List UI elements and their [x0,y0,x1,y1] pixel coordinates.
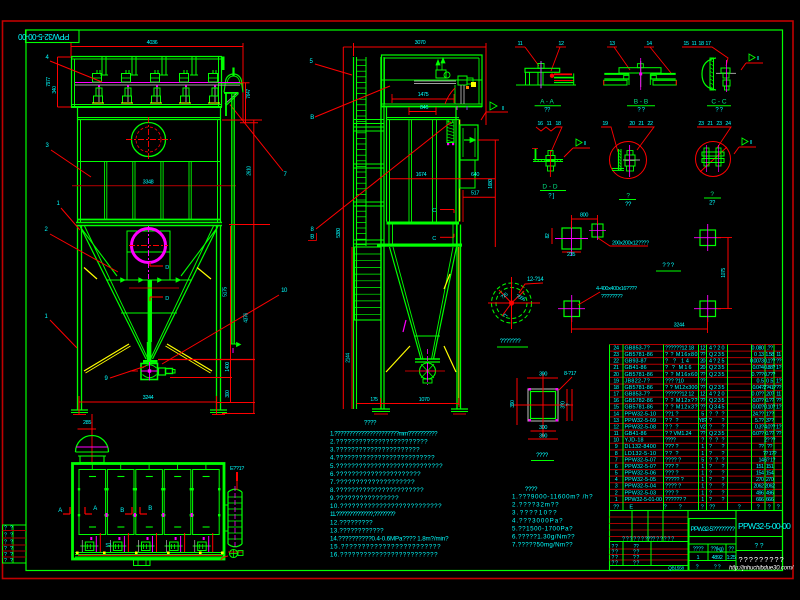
svg-text:21: 21 [638,121,644,127]
svg-text:GB5781-86: GB5781-86 [625,405,653,411]
svg-text:2062: 2062 [765,484,775,490]
svg-text:??? ?10: ??? ?10 [665,378,684,384]
svg-text:3??: 3?? [766,418,774,424]
svg-text:666: 666 [756,497,764,503]
svg-text:?: ? [701,505,704,511]
svg-text:? ? M16x80: ? ? M16x80 [665,352,698,358]
svg-text:16: 16 [613,398,619,404]
svg-text:0.0?4: 0.0?4 [753,365,764,371]
svg-text:17: 17 [705,41,711,47]
svg-text:7.?????50mg/Nm??: 7.?????50mg/Nm?? [512,542,573,549]
svg-text:1:25: 1:25 [727,555,736,561]
svg-text:2?41?: 2?41? [763,385,776,391]
svg-text:2: 2 [615,490,618,496]
svg-text:GB5782-86: GB5782-86 [625,398,653,404]
svg-text:18: 18 [555,121,561,127]
svg-text:E??1?: E??1? [230,466,244,472]
svg-text:? ?: ? ? [637,108,645,114]
svg-text:??(kg): ??(kg) [711,547,724,553]
svg-text:GB93-87: GB93-87 [625,359,647,365]
svg-text:235: 235 [567,252,575,258]
svg-text:2.????32m??: 2.????32m?? [512,502,559,509]
svg-text:????: ???? [364,420,377,427]
svg-text:1??: 1?? [766,411,774,417]
svg-text:640: 640 [471,172,479,178]
svg-text:1400: 1400 [225,362,231,372]
svg-text:A - A: A - A [540,99,554,106]
svg-text:15: 15 [683,41,689,47]
svg-text:.??: .?? [767,345,773,351]
svg-text:1475: 1475 [418,92,429,98]
svg-text:? ?: ? ? [612,561,619,567]
svg-text:1.??????????????????????mm????: 1.??????????????????????mm?????????? [330,431,438,438]
svg-text:??: ?? [709,505,715,511]
svg-text:175: 175 [370,397,378,403]
svg-text:15: 15 [613,405,619,411]
svg-text:3: 3 [615,484,618,490]
svg-text:C: C [432,236,436,242]
svg-text:9: 9 [615,444,618,450]
svg-text:DL132-8400: DL132-8400 [625,444,656,450]
svg-text:300: 300 [225,390,231,398]
svg-text:D - D: D - D [542,184,557,191]
svg-text:? ? M12x3?: ? ? M12x3? [665,405,698,411]
svg-text:? ? M12x300: ? ? M12x300 [665,385,698,391]
svg-text:0.??: 0.?? [765,398,774,404]
svg-text:?: ? [664,505,667,511]
svg-text:12-?14: 12-?14 [527,277,544,283]
svg-text:PPW32-5-10: PPW32-5-10 [625,411,656,417]
svg-text:270: 270 [766,477,774,483]
svg-text:GB853-7?: GB853-7? [625,392,650,398]
svg-text:0.0??: 0.0?? [753,431,764,437]
svg-text:13: 13 [613,418,619,424]
svg-text:V2: V2 [700,424,706,430]
svg-text:PPW32-5-08: PPW32-5-08 [625,424,656,430]
svg-text:Q235: Q235 [709,385,725,391]
svg-text:PPW32-5-00-00: PPW32-5-00-00 [18,32,70,41]
svg-text:1: 1 [615,497,618,503]
svg-text:??: ?? [776,431,781,437]
svg-text:9.????????????????: 9.???????????????? [330,495,399,502]
svg-text:II: II [584,141,586,147]
svg-text:1070: 1070 [419,397,430,403]
svg-text:2062: 2062 [754,484,764,490]
svg-text:PPW32-5-03: PPW32-5-03 [625,490,656,496]
svg-text:? ?: ? ? [714,565,721,571]
svg-text:390: 390 [539,372,547,378]
svg-text:12: 12 [558,41,564,47]
svg-text:PPW32-5-06: PPW32-5-06 [625,471,656,477]
svg-text:1?: 1? [776,365,781,371]
svg-text:11: 11 [776,392,781,398]
svg-text:0.04?: 0.04? [753,385,764,391]
svg-text:517: 517 [471,191,479,197]
svg-text:11: 11 [614,431,619,437]
svg-text:4892: 4892 [712,555,723,561]
svg-text:???? ?: ???? ? [665,484,681,490]
svg-text:GB5781-86: GB5781-86 [625,372,653,378]
svg-text:GB5781-86: GB5781-86 [625,352,653,358]
svg-text:11: 11 [692,41,697,47]
svg-text:????????: ???????? [601,294,623,300]
svg-text:??1 ?: ??1 ? [665,411,679,417]
svg-text:0 .???: 0 .??? [752,372,764,378]
svg-text:? ?: ? ? [754,543,763,550]
svg-text:D: D [165,296,169,302]
svg-text:0 .0??: 0 .0?? [752,392,764,398]
svg-text:???????: ??????? [500,339,522,345]
svg-text:24: 24 [613,345,619,351]
svg-text:10: 10 [613,438,619,444]
svg-text:13.????????????: 13.???????????? [330,527,384,534]
svg-text:II: II [750,140,752,146]
svg-text:22: 22 [613,359,619,365]
svg-text:??: ?? [613,505,619,511]
svg-text:????: ???? [693,547,704,553]
svg-text:4?25: 4?25 [709,359,725,365]
svg-text:B: B [310,115,314,121]
svg-text:??? ?: ??? ? [665,444,679,450]
svg-text:S?: S? [105,543,111,549]
svg-text:154: 154 [766,471,774,477]
svg-text:496: 496 [756,490,764,496]
svg-text:200x200x12????: 200x200x12???? [612,241,649,247]
svg-text:1.58: 1.58 [765,352,774,358]
svg-text:??: ?? [700,385,705,391]
svg-text:16: 16 [537,121,543,127]
svg-text:2610: 2610 [247,166,253,176]
svg-text:B: B [120,508,124,514]
svg-text:23: 23 [698,121,704,127]
svg-text:4-400x400x16????: 4-400x400x16???? [596,286,637,292]
svg-text:5.????????????????????????????: 5.???????????????????????????? [330,463,443,470]
svg-text:C: C [432,208,436,214]
svg-text:??? ?: ??? ? [665,464,679,470]
svg-text:17: 17 [613,392,619,398]
svg-text:3070: 3070 [415,40,426,46]
svg-text:0.88?: 0.88? [764,365,775,371]
svg-text:II: II [502,106,504,112]
svg-text:???: ??? [709,411,725,417]
svg-text:II: II [757,56,759,62]
svg-text:Q235: Q235 [709,398,725,404]
svg-text:3.??????????????????????: 3.?????????????????????? [330,447,420,454]
svg-text:7977: 7977 [46,77,52,87]
svg-text:??: ?? [767,444,772,450]
svg-text:20: 20 [629,121,635,127]
svg-text:PPW32-5????????: PPW32-5???????? [691,526,736,533]
svg-text:5.??: 5.?? [755,418,764,424]
svg-text:8: 8 [615,451,618,457]
svg-text:PPW32-5-07: PPW32-5-07 [625,457,656,463]
svg-text:Q235: Q235 [709,365,725,371]
svg-text:Q235: Q235 [709,431,725,437]
svg-text:??: ?? [700,431,705,437]
svg-text:??????12 18: ??????12 18 [665,345,694,351]
svg-text:2144: 2144 [346,353,352,363]
svg-text:390: 390 [510,400,516,408]
svg-text:5175: 5175 [223,287,229,297]
svg-text:0.00?: 0.00? [753,405,764,411]
svg-text:270: 270 [756,477,764,483]
svg-text:A: A [58,508,62,514]
svg-text:4036: 4036 [147,40,158,46]
svg-text:13: 13 [609,41,615,47]
svg-text:6.??????????????????????: 6.?????????????????????? [330,471,421,478]
svg-text:7.????????????????????: 7.???????????????????? [330,479,415,486]
svg-text:??: ?? [759,444,764,450]
svg-text:19: 19 [613,378,619,384]
svg-text:18: 18 [698,41,704,47]
svg-text:846: 846 [420,105,428,111]
svg-text:????: ???? [536,453,549,459]
svg-text:? ?: ? ? [715,108,723,114]
svg-text:1?: 1? [776,378,781,384]
svg-text:11.??????????????,????????: 11.??????????????,???????? [330,511,396,518]
svg-text:?: ? [777,505,780,511]
svg-text:12: 12 [700,345,705,351]
svg-text:285: 285 [83,420,91,426]
svg-text:? ]: ? ] [548,194,554,200]
svg-text:?????? ?: ?????? ? [665,497,686,503]
svg-text:496: 496 [766,490,774,496]
svg-text:? ? M16x60: ? ? M16x60 [665,372,698,378]
svg-text:5: 5 [615,471,618,477]
svg-text:? ?: ? ? [4,558,14,564]
svg-text:B - B: B - B [634,99,648,106]
svg-text:??: ?? [700,372,705,378]
svg-text:QB1558: QB1558 [668,566,684,572]
svg-text:11: 11 [547,121,552,127]
svg-text:? ? ? ? ? ? ???? ? ? ? ? ?: ? ? ? ? ? ? ???? ? ? ? ? ? [622,537,674,543]
svg-text:GB5781-86: GB5781-86 [625,385,653,391]
svg-text:1075: 1075 [721,268,727,278]
svg-text:4.0??: 4.0?? [764,424,775,430]
svg-text:0 .080: 0 .080 [752,345,764,351]
svg-text:1674: 1674 [416,172,427,178]
svg-text:0 .5: 0 .5 [757,378,764,384]
svg-text:1?: 1? [776,424,781,430]
svg-text:11: 11 [776,352,781,358]
svg-text:? ?: ? ? [4,533,14,539]
svg-text:12: 12 [700,392,705,398]
svg-text:A: A [93,506,97,512]
svg-text:14.??????????0.4-0.6MPa???? 1.: 14.??????????0.4-0.6MPa???? 1.8m?/min? [330,535,449,542]
svg-text:14: 14 [646,41,652,47]
svg-text:?: ? [679,505,682,511]
svg-text:PPW32-5-05: PPW32-5-05 [625,477,656,483]
svg-text:GB41-86: GB41-86 [625,365,647,371]
svg-text:6.?????1.30g/Nm??: 6.?????1.30g/Nm?? [512,534,575,541]
svg-text:?: ? [738,505,741,511]
svg-text:1?: 1? [776,405,781,411]
svg-text:.20?: .20? [765,392,774,398]
svg-text:4.???3000Pa?: 4.???3000Pa? [512,518,563,525]
svg-text:? ? M16: ? ? M16 [665,365,692,371]
svg-text:????: ???? [525,486,538,493]
svg-text:12: 12 [613,424,619,430]
svg-text:C - C: C - C [711,99,726,106]
svg-text:151: 151 [756,464,764,470]
svg-text:3348: 3348 [143,180,154,186]
svg-text:4.??????????????????????????: 4.?????????????????????????? [330,455,435,462]
svg-text:?????????: ????????? [739,555,784,564]
svg-text:154: 154 [756,471,764,477]
svg-text:????: ???? [665,438,676,444]
svg-text:?: ? [696,565,699,571]
svg-text:?: ? [757,505,760,511]
svg-text:6: 6 [615,464,618,470]
svg-text:23: 23 [716,121,722,127]
svg-text:???? ?: ???? ? [665,457,681,463]
svg-text:1680: 1680 [488,179,494,189]
svg-text:??? ?: ??? ? [665,471,679,477]
svg-text:16.?????????????????????????: 16.????????????????????????? [330,552,438,559]
svg-text:1: 1 [696,555,699,561]
svg-text:? ?: ? ? [633,561,640,567]
svg-text:htlp://jnhuchibdue30.com/: htlp://jnhuchibdue30.com/ [729,566,795,572]
svg-text:24.??: 24.?? [753,411,764,417]
svg-text:??: ?? [700,405,705,411]
svg-text:0.3?: 0.3? [755,424,764,430]
svg-text:PPW32-5-00-00: PPW32-5-00-00 [738,521,791,531]
svg-text:??: ?? [776,359,781,365]
svg-text:20: 20 [700,365,705,371]
svg-text:GB41-86: GB41-86 [625,431,647,437]
svg-text:12.?????????: 12.????????? [330,519,373,526]
svg-text:8-?17: 8-?17 [564,371,576,377]
svg-text:666: 666 [766,497,774,503]
svg-text:2? ??: 2? ?? [764,438,775,444]
svg-text:2.????????????????????????: 2.???????????????????????? [330,439,428,446]
svg-text:LD132-5-10: LD132-5-10 [625,451,656,457]
svg-text:0 .13: 0 .13 [754,352,764,358]
svg-text:??: ?? [776,398,781,404]
svg-text:0 .5: 0 .5 [766,378,773,384]
svg-text:10.??????????????????????????: 10.?????????????????????????? [330,503,442,510]
svg-text:? ? VM1.24: ? ? VM1.24 [665,431,692,437]
svg-text:? ?: ? ? [4,526,14,532]
svg-text:0.1??: 0.1?? [764,359,775,365]
svg-text:0.0??: 0.0?? [753,398,764,404]
svg-text:0.10?: 0.10? [764,405,775,411]
svg-text:?: ? [768,505,771,511]
svg-text:7647: 7647 [246,89,252,99]
svg-text:? ? M12x??: ? ? M12x?? [665,398,698,404]
svg-text:18: 18 [613,385,619,391]
svg-text:???: ??? [709,438,725,444]
svg-text:??: ?? [728,547,734,553]
svg-text:JB822-7?: JB822-7? [625,378,650,384]
svg-text:0.0073: 0.0073 [750,359,764,365]
svg-text:??: ?? [700,352,705,358]
svg-text:B: B [148,506,152,512]
svg-text:22: 22 [647,121,653,127]
svg-text:15.????????????????????????: 15.???????????????????????? [330,543,441,550]
svg-text:21: 21 [707,121,713,127]
svg-text:7: 7 [615,457,618,463]
svg-text:20: 20 [700,359,705,365]
svg-text:?? 1??: ?? 1?? [763,451,777,457]
svg-text:4?20: 4?20 [709,392,725,398]
svg-text:82: 82 [545,233,551,238]
svg-text:340: 340 [52,86,58,94]
svg-text:3244: 3244 [674,323,685,329]
svg-text:??? ?: ??? ? [665,490,679,496]
svg-text:PPW32-5-0?: PPW32-5-0? [625,464,656,470]
svg-text:300: 300 [539,425,547,431]
svg-text:Y8?: Y8? [699,418,707,424]
svg-text:??: ?? [700,378,705,384]
svg-text:8.???????????????????????: 8.??????????????????????? [330,487,424,494]
svg-text:3244: 3244 [143,395,154,401]
svg-text:14: 14 [613,411,619,417]
svg-text:? ?: ? ? [4,540,14,546]
svg-text:20: 20 [613,372,619,378]
svg-text:??: ?? [776,385,781,391]
svg-text:0.7??: 0.7?? [764,372,775,378]
svg-text:D: D [165,265,169,271]
svg-text:151: 151 [766,464,774,470]
svg-text:4: 4 [615,477,618,483]
svg-text:23: 23 [613,352,619,358]
svg-text:Q345: Q345 [709,405,725,411]
svg-text:????? ?: ????? ? [665,477,684,483]
svg-text:4376: 4376 [244,313,250,323]
svg-text:800: 800 [580,213,588,219]
svg-text:5380: 5380 [336,228,342,238]
svg-text:PPW32-5-01-00: PPW32-5-01-00 [625,497,662,503]
svg-text:B: B [310,235,314,241]
svg-text:390: 390 [539,434,547,440]
svg-text:6? 1?: 6? 1? [764,457,775,463]
svg-text:Q235: Q235 [709,372,725,378]
svg-text:21: 21 [613,365,619,371]
svg-text:PPW32-5-09: PPW32-5-09 [625,418,656,424]
svg-text:???: ??? [709,457,725,463]
svg-text:??????12 12: ??????12 12 [665,392,694,398]
svg-text:4?20: 4?20 [709,345,725,351]
svg-text:19: 19 [602,121,608,127]
svg-text:Q235: Q235 [709,352,725,358]
svg-text:??: ?? [700,398,705,404]
svg-text:YJD-18: YJD-18 [625,438,644,444]
svg-text:? ? ?: ? ? ? [662,263,674,269]
svg-text:24: 24 [725,121,731,127]
svg-text:0.??: 0.?? [765,431,774,437]
svg-text:PPW32-5-04: PPW32-5-04 [625,484,656,490]
svg-text:GB853-7?: GB853-7? [625,345,650,351]
svg-text:11: 11 [518,41,523,47]
